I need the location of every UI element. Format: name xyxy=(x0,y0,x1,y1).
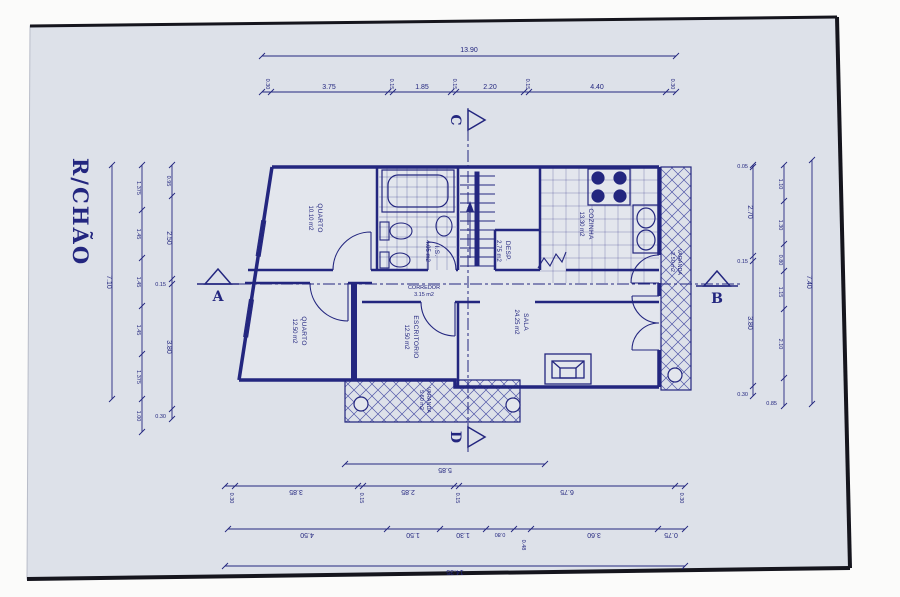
dim-bottom2-6: 0.75 xyxy=(664,531,678,538)
room-name: CORREDOR xyxy=(408,285,440,291)
room-name: VARANDA xyxy=(676,249,682,276)
dim-bottom1-5: 6.75 xyxy=(560,488,574,495)
room-area: 5.60 m2 xyxy=(418,390,424,410)
room-area: 12.50 m2 xyxy=(403,324,409,350)
room-area: 2.50 m2 xyxy=(669,252,675,272)
section-label-b: B xyxy=(711,291,723,307)
dim-left-mid-3: 1.45 xyxy=(135,325,141,336)
dim-right-inner-3: 3.80 xyxy=(746,316,753,330)
room-area: 12.50 m2 xyxy=(291,318,297,344)
dim-top-total: 13.90 xyxy=(460,47,478,54)
dim-top-6: 0.15 xyxy=(524,79,530,90)
room-name: DESP. xyxy=(504,241,511,261)
dim-top-7: 4.40 xyxy=(590,84,604,91)
section-label-c: C xyxy=(447,114,463,125)
section-label-a: A xyxy=(212,289,225,305)
dim-right-total: 7.40 xyxy=(805,275,812,289)
room-area: 24.25 m2 xyxy=(513,309,519,335)
dim-bottom1-6: 0.30 xyxy=(678,493,684,504)
dim-right-mid-5: 0.85 xyxy=(766,401,777,407)
dim-right-mid-0: 1.10 xyxy=(777,179,783,190)
room-label-varanda-sul: VARANDA 5.60 m2 xyxy=(418,387,431,414)
room-area: 3.15 m2 xyxy=(414,292,434,298)
dim-top-0: 0.30 xyxy=(264,79,270,90)
dim-bottom2-3: 0.80 xyxy=(495,531,506,537)
room-area: 13.30 m2 xyxy=(578,211,584,237)
varanda-east-hatch xyxy=(661,167,691,390)
room-name: SALA xyxy=(522,313,529,331)
dim-right-mid-2: 0.80 xyxy=(777,255,783,266)
dim-bottom2-1: 1.50 xyxy=(406,531,420,538)
dim-bottom1-2: 0.15 xyxy=(358,493,364,504)
room-area: 2.75 m2 xyxy=(495,240,501,262)
dim-top-2: 0.15 xyxy=(388,79,394,90)
dim-bottom-total: 14.35 xyxy=(446,568,464,575)
dim-bottom2-4: 0.48 xyxy=(520,540,526,551)
dim-bottom1-3: 2.85 xyxy=(401,488,415,495)
dim-left-inner-1: 2.50 xyxy=(165,231,172,245)
dim-top-1: 3.75 xyxy=(322,84,336,91)
dim-bottom2-0: 4.50 xyxy=(300,531,314,538)
room-area: 10.10 m2 xyxy=(307,205,313,231)
post-circle xyxy=(354,397,368,411)
dim-left-mid-0: 1.375 xyxy=(135,181,141,195)
dim-left-inner-2: 0.15 xyxy=(155,282,166,288)
dim-top-4: 0.15 xyxy=(451,79,457,90)
dim-left-total: 7.10 xyxy=(105,275,112,289)
dim-left-inner-4: 0.30 xyxy=(155,414,166,420)
section-label-d: D xyxy=(447,431,463,443)
dim-bottom-varanda: 5.85 xyxy=(438,466,452,473)
floorplan-canvas: zome xyxy=(0,0,900,597)
dim-bottom1-0: 0.30 xyxy=(228,493,234,504)
dim-top-3: 1.85 xyxy=(415,84,429,91)
room-label-varanda-este: VARANDA 2.50 m2 xyxy=(669,249,682,276)
post-circle xyxy=(668,368,682,382)
dim-left-inner-3: 3.80 xyxy=(165,340,172,354)
dim-right-inner-2: 0.15 xyxy=(737,259,748,265)
room-name: I.S. xyxy=(433,246,440,257)
dim-left-mid-5: 1.00 xyxy=(135,411,141,422)
room-name: QUARTO xyxy=(300,316,307,345)
room-name: COZINHA xyxy=(587,208,594,240)
page-title: R/CHÃO xyxy=(68,158,93,266)
dim-left-mid-4: 1.375 xyxy=(135,370,141,384)
dim-bottom1-4: 0.15 xyxy=(454,493,460,504)
dim-top-8: 0.30 xyxy=(669,79,675,90)
dim-left-inner-0: 0.95 xyxy=(165,176,171,187)
dim-right-inner-4: 0.30 xyxy=(737,392,748,398)
post-circle xyxy=(506,398,520,412)
dim-right-mid-3: 1.15 xyxy=(777,287,783,298)
dim-bottom1-1: 3.85 xyxy=(289,488,303,495)
dim-right-mid-4: 2.10 xyxy=(777,339,783,350)
room-name: QUARTO xyxy=(316,203,323,232)
dim-right-inner-1: 2.70 xyxy=(746,205,753,219)
dim-left-mid-2: 1.45 xyxy=(135,277,141,288)
dim-right-inner-0: 0.05 xyxy=(737,164,748,170)
dim-bottom2-2: 1.30 xyxy=(456,531,470,538)
dim-top-5: 2.20 xyxy=(483,84,497,91)
dim-left-mid-1: 1.45 xyxy=(135,229,141,240)
room-name: VARANDA xyxy=(425,387,431,414)
dim-right-mid-1: 1.30 xyxy=(777,220,783,231)
room-name: ESCRITORIO xyxy=(412,315,419,358)
dim-bottom2-5: 3.60 xyxy=(587,531,601,538)
scanned-blueprint-page: zome xyxy=(0,0,900,597)
room-area: 4.05 m2 xyxy=(424,240,430,262)
